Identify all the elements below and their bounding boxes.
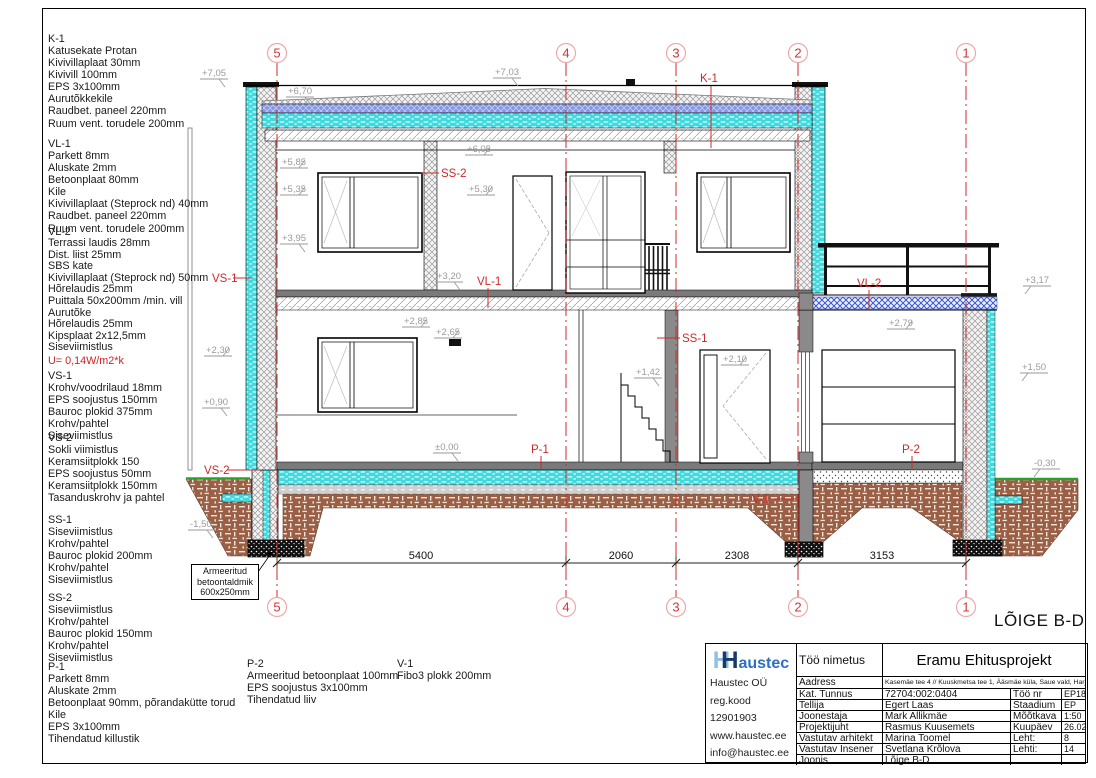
interior-wall-ss2 <box>424 141 437 290</box>
work-label: Töö nimetus <box>796 644 882 676</box>
elevation-value: +1,42 <box>636 367 660 378</box>
spec-p1: P-1Parkett 8mm Aluskate 2mm Betoonplaat … <box>48 661 235 746</box>
elevation-value: +3,20 <box>437 271 461 282</box>
elevation-value: +6,70 <box>288 86 312 97</box>
door-1f <box>700 350 770 463</box>
elevation-value: +2,85 <box>404 316 428 327</box>
elevation-value: +7,05 <box>202 68 226 79</box>
dimension-value: 2308 <box>725 550 749 562</box>
grid-axis-label: 5 <box>273 46 280 61</box>
window-2f-right <box>697 173 790 252</box>
elevation-value: +2,10 <box>723 354 747 365</box>
jobno-label: Töö nr <box>1010 688 1061 699</box>
scale-value: 1:50 <box>1061 710 1085 721</box>
sheets-label: Lehti: <box>1010 743 1061 754</box>
label-v1: V-1 <box>752 494 769 506</box>
client-value: Egert Laas <box>882 699 1010 710</box>
elevation-value: -0,30 <box>1034 458 1056 469</box>
spec-code: P-2 <box>247 658 398 670</box>
stage-value: EP <box>1061 699 1085 710</box>
haustec-logo: HHaustec <box>710 647 792 675</box>
elevation-value: +2,30 <box>206 345 230 356</box>
interior-wall-axis3-top <box>664 141 676 173</box>
spec-vl1: VL-1Parkett 8mm Aluskate 2mm Betoonplaat… <box>48 138 208 235</box>
window-2f-left <box>318 173 422 252</box>
spec-v1: V-1Fibo3 plokk 200mm <box>397 658 491 682</box>
window-2f-middle <box>566 172 645 293</box>
label-ss2: SS-2 <box>441 168 467 180</box>
dimension-line: 5400 2060 2308 3153 <box>273 550 970 570</box>
project-title: Eramu Ehitusprojekt <box>882 644 1085 676</box>
elevation-value: +1,50 <box>1022 362 1046 373</box>
garage-front-wall-upper <box>799 310 813 352</box>
garage-wall-axis1 <box>963 297 987 540</box>
sheet-value: 8 <box>1061 732 1085 743</box>
client-label: Tellija <box>796 699 882 710</box>
drawing-sheet: 5400 2060 2308 3153 5 4 3 2 1 5 4 3 2 1 <box>0 0 1096 778</box>
dimension-value: 5400 <box>409 550 433 562</box>
label-ss1: SS-1 <box>682 333 708 345</box>
drawing-title: LÕIGE B-D <box>994 611 1084 631</box>
elevation-value: -1,50 <box>190 519 212 530</box>
spec-lines: Sokli viimistlus Keramsiitplokk 150 EPS … <box>48 444 164 504</box>
spec-code: P-1 <box>48 661 235 673</box>
elevation-value: +0,90 <box>204 397 228 408</box>
pm-value: Rasmus Kuusemets <box>882 721 1010 732</box>
spec-p2: P-2Armeeritud betoonplaat 100mm EPS sooj… <box>247 658 398 706</box>
spec-lines: Armeeritud betoonplaat 100mm EPS soojust… <box>247 670 398 706</box>
terrace-railing <box>818 243 999 295</box>
spec-ss1: SS-1Siseviimistlus Krohv/pahtel Bauroc p… <box>48 514 152 586</box>
spec-lines: Terrassi laudis 28mm Dist. liist 25mm SB… <box>48 238 208 354</box>
spec-code: VL-1 <box>48 138 208 150</box>
grid-axis-label: 1 <box>962 600 969 615</box>
label-p1: P-1 <box>531 444 549 456</box>
jobno-value: EP18-07 <box>1061 688 1085 699</box>
drawing-label: Joonis <box>796 754 882 765</box>
garage-door <box>822 350 955 462</box>
grid-axis-label: 3 <box>672 600 679 615</box>
interior-partition <box>579 310 583 462</box>
roof-concrete-panel <box>265 130 810 141</box>
garage-front-wall-lower <box>799 452 813 463</box>
sheets-value: 14 <box>1061 743 1085 754</box>
elevation-value: +6,05 <box>467 144 491 155</box>
grid-axis-label: 2 <box>794 46 801 61</box>
spec-lines: Katusekate Protan Kivivillaplaat 30mm Ki… <box>48 45 184 130</box>
sheet-label: Leht: <box>1010 732 1061 743</box>
elevation-value: +5,30 <box>469 184 493 195</box>
label-vs1: VS-1 <box>212 273 238 285</box>
footing-axis5 <box>248 540 304 557</box>
date-label: Kuupäev <box>1010 721 1061 732</box>
engineer-label: Vastutav Insener <box>796 743 882 754</box>
spec-code: SS-1 <box>48 514 152 526</box>
spec-lines: Parkett 8mm Aluskate 2mm Betoonplaat 90m… <box>48 673 235 746</box>
architect-value: Marina Toomel <box>882 732 1010 743</box>
grid-axis-label: 1 <box>962 46 969 61</box>
pm-label: Projektijuht <box>796 721 882 732</box>
spec-vl2: VL-2Terrassi laudis 28mm Dist. liist 25m… <box>48 226 208 367</box>
roof-cyan-layer <box>262 113 812 128</box>
label-vs2: VS-2 <box>204 465 230 477</box>
date-value: 26.02.18 <box>1061 721 1085 732</box>
elevation-value: +3,17 <box>1025 275 1049 286</box>
wall-axis2-insulation <box>812 87 825 293</box>
label-p2: P-2 <box>902 444 920 456</box>
spec-code: VS-1 <box>48 370 162 382</box>
spec-lines: Fibo3 plokk 200mm <box>397 670 491 682</box>
address-value: Kasemäe tee 4 // Kuuskmetsa tee 1, Ääsmä… <box>882 676 1085 688</box>
elevation-value: +2,79 <box>889 318 913 329</box>
elevation-value: +7,03 <box>495 67 519 78</box>
address-label: Aadress <box>796 676 882 688</box>
dimension-value: 3153 <box>870 550 894 562</box>
exterior-wall-left-masonry <box>257 87 276 470</box>
elevation-value: +3,95 <box>282 233 306 244</box>
footing-axis1 <box>953 540 1002 556</box>
drafter-label: Joonestaja <box>796 710 882 721</box>
spec-vs2: VS-2Sokli viimistlus Keramsiitplokk 150 … <box>48 432 164 504</box>
logo-h-dark: H <box>721 647 738 674</box>
dimension-value: 2060 <box>609 550 633 562</box>
label-vl2: VL-2 <box>857 278 881 290</box>
company-info: Haustec OÜ reg.kood 12901903 www.haustec… <box>710 675 792 763</box>
spec-ss2: SS-2Siseviimistlus Krohv/pahtel Bauroc p… <box>48 592 152 664</box>
engineer-value: Svetlana Krõlova <box>882 743 1010 754</box>
spec-code: K-1 <box>48 33 184 45</box>
drawing-name: Lõige B-D <box>882 754 1010 765</box>
architect-label: Vastutav arhitekt <box>796 732 882 743</box>
u-value: U= 0,14W/m2*k <box>48 355 208 367</box>
spec-lines: Siseviimistlus Krohv/pahtel Bauroc ploki… <box>48 526 152 586</box>
wall-symbol <box>449 339 461 346</box>
cadastral-value: 72704:002:0404 <box>882 688 1010 699</box>
roof-vent <box>626 79 635 85</box>
spec-code: VS-2 <box>48 432 164 444</box>
cadastral-label: Kat. Tunnus <box>796 688 882 699</box>
grid-axes: 5 4 3 2 1 5 4 3 2 1 <box>268 44 976 617</box>
company-cell: HHaustec Haustec OÜ reg.kood 12901903 ww… <box>706 644 796 765</box>
company-regcode: reg.kood 12901903 <box>710 693 792 728</box>
elevation-value: +2,65 <box>436 327 460 338</box>
scale-label: Mõõtkava <box>1010 710 1061 721</box>
drain-insulation-left <box>222 494 252 502</box>
elevation-value: +5,85 <box>282 157 306 168</box>
label-k1: K-1 <box>700 73 718 85</box>
grid-axis-label: 2 <box>794 600 801 615</box>
staircase <box>621 373 670 462</box>
logo-text: austec <box>738 655 789 672</box>
spec-lines: Siseviimistlus Krohv/pahtel Bauroc ploki… <box>48 604 152 664</box>
parapet-cap-left <box>243 82 279 87</box>
footing-axis2 <box>785 542 823 557</box>
company-website: www.haustec.ee <box>710 728 792 746</box>
roof-slope-insulation <box>262 89 812 105</box>
spec-k1: K-1Katusekate Protan Kivivillaplaat 30mm… <box>48 33 184 130</box>
title-block: HHaustec Haustec OÜ reg.kood 12901903 ww… <box>705 643 1088 763</box>
empty-cell <box>1061 754 1085 765</box>
roof-blue-layer <box>262 104 812 113</box>
spec-lines: Parkett 8mm Aluskate 2mm Betoonplaat 80m… <box>48 150 208 235</box>
parapet-cap-axis2 <box>792 82 828 87</box>
drafter-value: Mark Allikmäe <box>882 710 1010 721</box>
window-1f-left <box>318 338 417 412</box>
empty-cell <box>1010 754 1061 765</box>
spec-code: V-1 <box>397 658 491 670</box>
roof-assembly <box>246 79 826 150</box>
elevation-value: +5,35 <box>282 184 306 195</box>
company-email: info@haustec.ee <box>710 745 792 763</box>
grid-axis-label: 4 <box>562 46 569 61</box>
stage-label: Staadium <box>1010 699 1061 710</box>
footing-note: Armeeritud betoontaldmik 600x250mm <box>191 564 259 600</box>
company-name: Haustec OÜ <box>710 675 792 693</box>
intermediate-slab <box>276 290 812 310</box>
spec-code: SS-2 <box>48 592 152 604</box>
door-2f <box>513 176 552 290</box>
label-vl1: VL-1 <box>477 276 501 288</box>
grid-axis-label: 5 <box>273 600 280 615</box>
elevation-value: ±0,00 <box>435 442 459 453</box>
grid-axis-label: 3 <box>672 46 679 61</box>
grid-axis-label: 4 <box>562 600 569 615</box>
